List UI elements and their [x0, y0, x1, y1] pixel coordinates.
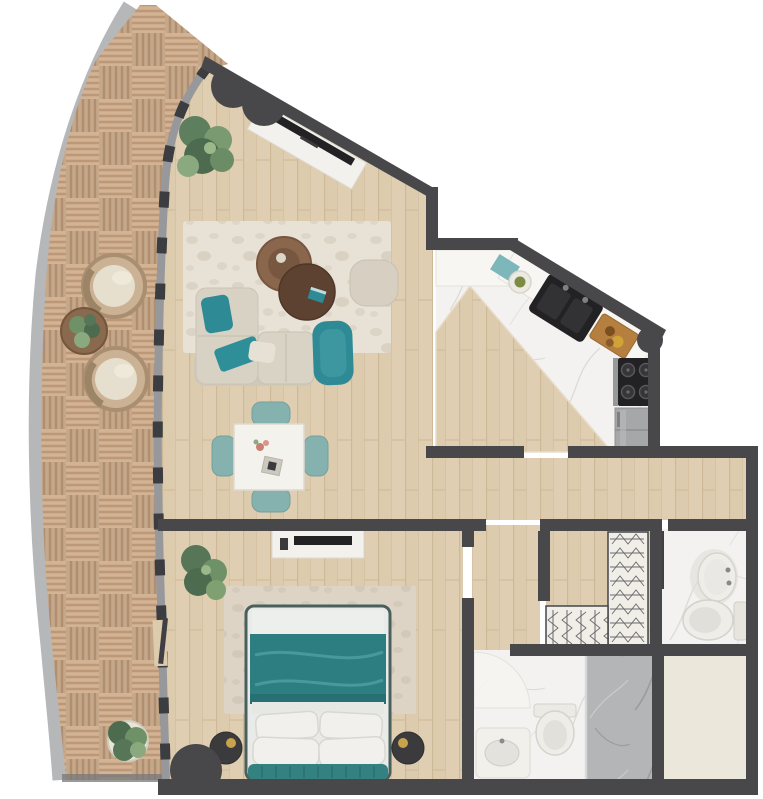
wall-segment: [538, 531, 550, 601]
wall-segment: [568, 446, 660, 458]
potted-plant: [108, 721, 148, 761]
toilet: [534, 704, 576, 755]
wall-segment: [462, 598, 474, 788]
dining-chair: [304, 436, 328, 476]
floor-plan: [0, 0, 763, 799]
wall-segment: [746, 446, 758, 795]
toilet: [683, 600, 747, 640]
wall-segment: [652, 644, 664, 784]
duvet: [250, 634, 386, 704]
vestibule-floor: [472, 525, 540, 653]
balcony-bottom-edge: [62, 774, 166, 782]
beige-pouf: [350, 260, 398, 306]
washbasin: [698, 553, 736, 601]
wall-segment: [158, 519, 486, 531]
bedroom-tv-console: [272, 530, 364, 558]
teal-lounge-chair: [312, 320, 354, 385]
double-bed: [246, 606, 390, 780]
wicker-armchair: [85, 348, 147, 410]
dining-chair: [212, 436, 236, 476]
wall-segment: [426, 446, 524, 458]
wall-segment: [510, 644, 750, 656]
plant-side-table: [61, 308, 107, 354]
utility-room-floor: [660, 650, 750, 783]
door-arc: [242, 82, 286, 126]
seat-pillow: [248, 340, 277, 363]
washbasin: [476, 728, 530, 778]
dining-chair: [252, 488, 290, 512]
wall-segment: [462, 531, 474, 547]
dining-chair: [252, 402, 290, 426]
wall-segment: [650, 531, 662, 644]
wall-corner: [637, 327, 663, 353]
cooktop: [613, 358, 654, 406]
wall-segment: [158, 779, 758, 795]
wall-segment: [668, 519, 750, 531]
wardrobe-rail: [546, 606, 608, 646]
pillow: [318, 736, 385, 767]
wicker-armchair: [83, 255, 145, 317]
wall-segment: [426, 238, 518, 250]
tv: [294, 536, 352, 545]
floor-plan-stage: [0, 0, 763, 799]
wall-segment: [654, 446, 758, 458]
nightstand: [392, 732, 424, 764]
pillow: [253, 737, 320, 767]
living-room: [177, 103, 398, 386]
shower-floor: [586, 652, 654, 783]
wall-segment: [540, 519, 662, 531]
wardrobe-rail: [608, 532, 648, 646]
